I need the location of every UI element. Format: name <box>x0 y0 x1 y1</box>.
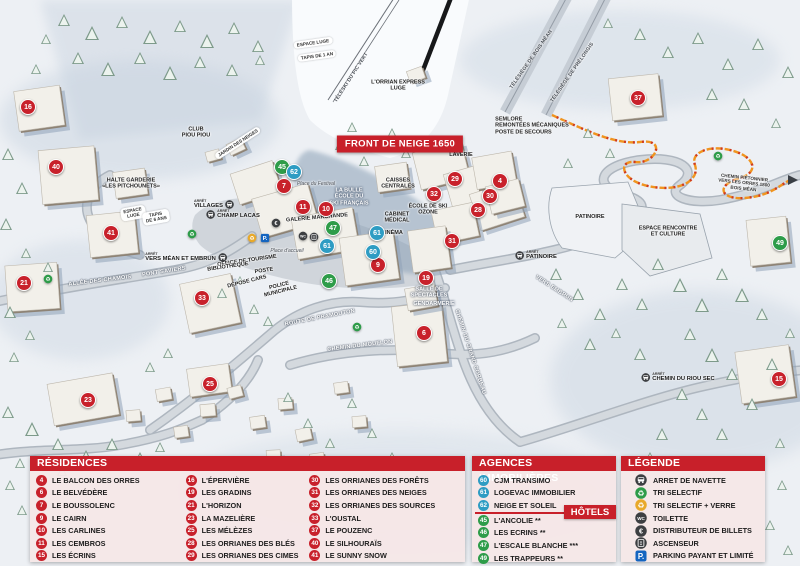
bus-stop-name: CHAMP LACAS <box>217 214 260 220</box>
legend-item: ARRET DE NAVETTE <box>627 474 759 487</box>
map-label: LAVERIE <box>449 152 472 158</box>
svg-text:♻: ♻ <box>638 501 645 510</box>
legend-label: ASCENSEUR <box>653 539 699 548</box>
map-label: CAISSES CENTRALES <box>381 178 415 191</box>
bus-stop-text: ARRÊTCHAMP LACAS <box>217 210 260 219</box>
marker-number: 61 <box>478 487 489 498</box>
residences-panel-title: RÉSIDENCES <box>30 456 465 471</box>
item-label: LES ORRIANES DES CIMES <box>202 551 299 560</box>
recycle-green-icon: ♻ <box>635 487 647 499</box>
map-marker-61: 61 <box>319 238 335 254</box>
map-label: TÉLÉSKI DU PIC VERT <box>334 52 370 104</box>
item-label: LE BELVÉDÈRE <box>52 488 107 497</box>
item-label: L'ESCALE BLANCHE *** <box>494 541 578 550</box>
item-label: LES MÉLÈZES <box>202 526 253 535</box>
marker-number: 29 <box>186 550 197 561</box>
svg-text:♻: ♻ <box>249 235 254 242</box>
map-label: L'ORRIAN EXPRESS LUGE <box>371 80 425 93</box>
map-marker-37: 37 <box>630 90 646 106</box>
recycle-yellow-icon: ♻ <box>635 499 647 511</box>
map-label: VERS EMBRUN <box>534 274 574 303</box>
map-marker-19: 19 <box>418 270 434 286</box>
map-marker-28: 28 <box>470 202 486 218</box>
item-label: LES GRADINS <box>202 488 252 497</box>
map-marker-23: 23 <box>80 392 96 408</box>
list-item: 11LES CEMBROS <box>36 537 186 550</box>
map-marker-47: 47 <box>325 220 341 236</box>
map-label: HALTE GARDERIE «LES PITCHOUNETS» <box>102 178 160 191</box>
residences-column: 4LE BALCON DES ORRES6LE BELVÉDÈRE7LE BOU… <box>36 474 186 562</box>
legend-label: ARRET DE NAVETTE <box>653 476 726 485</box>
legend-item: ASCENSEUR <box>627 537 759 550</box>
legend-item: ♻TRI SELECTIF <box>627 487 759 500</box>
item-label: LES ORRIANES DES FORÊTS <box>325 476 428 485</box>
recycle-yellow-icon: ♻ <box>248 234 257 243</box>
item-label: LE SUNNY SNOW <box>325 551 387 560</box>
list-item: 4LE BALCON DES ORRES <box>36 474 186 487</box>
marker-number: 46 <box>478 527 489 538</box>
list-item: 23LA MAZELIÈRE <box>186 512 310 525</box>
bus-stop-name: CHEMIN DU RIOU SEC <box>652 377 714 383</box>
item-label: LE BALCON DES ORRES <box>52 476 140 485</box>
list-item: 16L'ÉPERVIÈRE <box>186 474 310 487</box>
marker-number: 28 <box>186 538 197 549</box>
item-label: LES CARLINES <box>52 526 106 535</box>
map-label: JARDIN DES NEIGES <box>214 126 262 161</box>
bus-stop: ARRÊTVERS MÉAN ET EMBRUN <box>145 249 227 267</box>
item-label: LE CAIRN <box>52 514 86 523</box>
resort-map: FRONT DE NEIGE 1650 16404121232533711109… <box>0 0 800 566</box>
toilet-icon: WC <box>635 512 647 524</box>
marker-number: 23 <box>186 513 197 524</box>
item-label: LES ÉCRINS <box>52 551 96 560</box>
map-marker-33: 33 <box>194 290 210 306</box>
legend-label: TRI SELECTIF <box>653 488 702 497</box>
bus-stop-name: PATINOIRE <box>526 255 557 261</box>
item-label: L'ANCOLIE ** <box>494 516 541 525</box>
list-item: 15LES ÉCRINS <box>36 550 186 563</box>
map-label: TÉLÉSIÈGE DE PRÉLONGIS <box>550 42 596 104</box>
map-marker-4: 4 <box>492 173 508 189</box>
list-item: 60CJM TRANSIMO <box>478 474 610 487</box>
svg-text:P.: P. <box>638 552 644 561</box>
bus-stop-text: ARRÊTPATINOIRE <box>526 251 557 260</box>
toilet-icon: WC <box>299 232 308 241</box>
map-label: LA BULLE ÉCOLE DU SKI FRANÇAIS <box>329 188 368 207</box>
item-label: NEIGE ET SOLEIL <box>494 501 556 510</box>
legend-label: DISTRIBUTEUR DE BILLETS <box>653 526 752 535</box>
map-label: CHEMIN DU GRAND CORBEAU <box>453 309 487 396</box>
agences-hotels-panel: AGENCES IMMOBILIÈRES 60CJM TRANSIMO61LOG… <box>472 456 616 562</box>
hotels-list: 45L'ANCOLIE **46LES ECRINS **47L'ESCALE … <box>472 514 616 564</box>
legend-item: €DISTRIBUTEUR DE BILLETS <box>627 524 759 537</box>
marker-number: 47 <box>478 540 489 551</box>
map-marker-31: 31 <box>444 233 460 249</box>
map-marker-32: 32 <box>426 186 442 202</box>
list-item: 25LES MÉLÈZES <box>186 524 310 537</box>
recycle-green-icon: ♻ <box>353 323 362 332</box>
hotels-panel-title: HÔTELS <box>564 505 616 519</box>
item-label: LE SILHOURAÏS <box>325 539 381 548</box>
item-label: LES ORRIANES DES BLÉS <box>202 539 295 548</box>
map-marker-15: 15 <box>771 371 787 387</box>
marker-number: 41 <box>309 550 320 561</box>
map-label: TAPIS DE 1 AN <box>297 50 336 63</box>
svg-text:♻: ♻ <box>45 276 50 283</box>
marker-number: 11 <box>36 538 47 549</box>
recycle-green-icon: ♻ <box>188 230 197 239</box>
legend-label: TOILETTE <box>653 514 688 523</box>
list-item: 47L'ESCALE BLANCHE *** <box>478 539 610 552</box>
map-label: CHEMIN PIÉTONNIER VERS LES ORRES 1800 BO… <box>717 172 770 193</box>
map-label: DÉPOSE CARS <box>227 274 267 290</box>
map-label: PONT SAVIERS <box>142 265 187 278</box>
legende-list: ARRET DE NAVETTE♻TRI SELECTIF♻TRI SELECT… <box>621 471 765 562</box>
list-item: 29LES ORRIANES DES CIMES <box>186 550 310 563</box>
map-label: SALLE DE SPECTACLES <box>411 287 448 300</box>
marker-number: 25 <box>186 525 197 536</box>
item-label: LE BOUSSOLENC <box>52 501 115 510</box>
front-de-neige-banner: FRONT DE NEIGE 1650 <box>337 136 463 153</box>
list-item: 31LES ORRIANES DES NEIGES <box>309 487 461 500</box>
marker-number: 7 <box>36 500 47 511</box>
marker-number: 6 <box>36 487 47 498</box>
list-item: 19LES GRADINS <box>186 487 310 500</box>
map-marker-60: 60 <box>365 244 381 260</box>
svg-text:€: € <box>639 526 643 535</box>
marker-number: 15 <box>36 550 47 561</box>
map-marker-10: 10 <box>318 201 334 217</box>
list-item: 41LE SUNNY SNOW <box>309 550 461 563</box>
legende-panel-title: LÉGENDE <box>621 456 765 471</box>
item-label: L'OUSTAL <box>325 514 361 523</box>
legende-panel: LÉGENDE ARRET DE NAVETTE♻TRI SELECTIF♻TR… <box>621 456 765 562</box>
list-item: 46LES ECRINS ** <box>478 527 610 540</box>
marker-number: 10 <box>36 525 47 536</box>
bus-stop-icon <box>206 206 215 224</box>
bus-stop-icon <box>218 249 227 267</box>
bus-stop-name: VERS MÉAN ET EMBRUN <box>145 257 216 263</box>
svg-text:€: € <box>275 221 278 227</box>
marker-number: 19 <box>186 487 197 498</box>
list-item: 10LES CARLINES <box>36 524 186 537</box>
marker-number: 30 <box>309 475 320 486</box>
bus-stop-text: ARRÊTVERS MÉAN ET EMBRUN <box>145 253 216 262</box>
legend-label: TRI SELECTIF + VERRE <box>653 501 736 510</box>
map-marker-25: 25 <box>202 376 218 392</box>
list-item: 40LE SILHOURAÏS <box>309 537 461 550</box>
item-label: LES CEMBROS <box>52 539 106 548</box>
marker-number: 9 <box>36 513 47 524</box>
item-label: LES ORRIANES DES NEIGES <box>325 488 426 497</box>
map-label: ROUTE DE PRAMOUTON <box>284 308 355 328</box>
svg-text:♻: ♻ <box>715 153 720 160</box>
item-label: CJM TRANSIMO <box>494 476 550 485</box>
list-item: 49LES TRAPPEURS ** <box>478 552 610 565</box>
recycle-green-icon: ♻ <box>714 152 723 161</box>
list-item: 6LE BELVÉDÈRE <box>36 487 186 500</box>
bus-stop-icon <box>641 369 650 387</box>
recycle-green-icon: ♻ <box>44 275 53 284</box>
map-label: TÉLÉSIÈGE DE BOIS MÉAN <box>509 29 554 90</box>
svg-text:♻: ♻ <box>638 489 645 498</box>
svg-text:WC: WC <box>300 234 306 238</box>
map-label: CLUB PIOU PIOU <box>182 127 210 140</box>
marker-number: 49 <box>478 553 489 564</box>
map-label: ÉCOLE DE SKI OZONE <box>409 204 448 217</box>
svg-text:♻: ♻ <box>354 324 359 331</box>
list-item: 9LE CAIRN <box>36 512 186 525</box>
elevator-icon <box>310 233 319 242</box>
parking-icon: P. <box>261 234 270 243</box>
bus-stop: ARRÊTPATINOIRE <box>515 247 557 265</box>
map-label: CHEMIN DU MOUFLON <box>327 339 393 353</box>
bus-stop: ARRÊTCHEMIN DU RIOU SEC <box>641 369 714 387</box>
parking-icon: P. <box>635 550 647 562</box>
map-label: SEMLORE REMONTÉES MÉCANIQUES POSTE DE SE… <box>495 117 569 136</box>
marker-number: 31 <box>309 487 320 498</box>
list-item: 30LES ORRIANES DES FORÊTS <box>309 474 461 487</box>
map-marker-16: 16 <box>20 99 36 115</box>
euro-icon: € <box>635 525 647 537</box>
residences-panel: RÉSIDENCES 4LE BALCON DES ORRES6LE BELVÉ… <box>30 456 465 562</box>
map-marker-46: 46 <box>321 273 337 289</box>
map-marker-61: 61 <box>369 225 385 241</box>
bus-icon <box>635 474 647 486</box>
list-item: 32LES ORRIANES DES SOURCES <box>309 499 461 512</box>
item-label: L'HORIZON <box>202 501 242 510</box>
residences-column: 30LES ORRIANES DES FORÊTS31LES ORRIANES … <box>309 474 461 562</box>
svg-text:WC: WC <box>637 516 645 521</box>
map-label: GENDARMERIE <box>413 301 454 307</box>
map-marker-6: 6 <box>416 325 432 341</box>
bus-stop-icon <box>515 247 524 265</box>
item-label: LES TRAPPEURS ** <box>494 554 563 563</box>
list-item: 7LE BOUSSOLENC <box>36 499 186 512</box>
euro-icon: € <box>272 219 281 228</box>
item-label: LES ECRINS ** <box>494 528 546 537</box>
marker-number: 4 <box>36 475 47 486</box>
item-label: L'ÉPERVIÈRE <box>202 476 250 485</box>
list-item: 21L'HORIZON <box>186 499 310 512</box>
legend-item: WCTOILETTE <box>627 512 759 525</box>
map-label: POLICE MUNICIPALE <box>262 279 298 299</box>
map-label: PATINOIRE <box>575 214 604 220</box>
residences-list: 4LE BALCON DES ORRES6LE BELVÉDÈRE7LE BOU… <box>30 471 465 562</box>
list-item: 37LE POUZENC <box>309 524 461 537</box>
item-label: LA MAZELIÈRE <box>202 514 256 523</box>
item-label: LES ORRIANES DES SOURCES <box>325 501 435 510</box>
map-label: ESPACE LUGE <box>293 37 332 50</box>
legend-item: ♻TRI SELECTIF + VERRE <box>627 499 759 512</box>
list-item: 61LOGEVAC IMMOBILIER <box>478 487 610 500</box>
map-marker-40: 40 <box>48 159 64 175</box>
map-marker-49: 49 <box>772 235 788 251</box>
residences-column: 16L'ÉPERVIÈRE19LES GRADINS21L'HORIZON23L… <box>186 474 310 562</box>
marker-number: 33 <box>309 513 320 524</box>
list-item: 33L'OUSTAL <box>309 512 461 525</box>
list-item: 28LES ORRIANES DES BLÉS <box>186 537 310 550</box>
item-label: LE POUZENC <box>325 526 372 535</box>
map-marker-41: 41 <box>103 225 119 241</box>
marker-number: 16 <box>186 475 197 486</box>
marker-number: 40 <box>309 538 320 549</box>
map-label: ESPACE RENCONTRE ET CULTURE <box>639 226 698 239</box>
bus-stop-text: ARRÊTCHEMIN DU RIOU SEC <box>652 373 714 382</box>
map-marker-62: 62 <box>286 164 302 180</box>
marker-number: 45 <box>478 515 489 526</box>
marker-number: 37 <box>309 525 320 536</box>
map-marker-11: 11 <box>295 199 311 215</box>
map-label: CABINET MÉDICAL <box>384 212 409 225</box>
elevator-icon <box>635 537 647 549</box>
bus-stop: ARRÊTCHAMP LACAS <box>206 206 260 224</box>
item-label: LOGEVAC IMMOBILIER <box>494 488 575 497</box>
map-label: ALLÉE DES CHAMOIS <box>68 274 132 288</box>
agences-panel-title: AGENCES IMMOBILIÈRES <box>472 456 616 471</box>
marker-number: 62 <box>478 500 489 511</box>
svg-text:P.: P. <box>263 236 268 242</box>
marker-number: 32 <box>309 500 320 511</box>
legend-label: PARKING PAYANT ET LIMITÉ <box>653 551 754 560</box>
marker-number: 60 <box>478 475 489 486</box>
map-marker-21: 21 <box>16 275 32 291</box>
legend-item: P.PARKING PAYANT ET LIMITÉ <box>627 550 759 563</box>
marker-number: 21 <box>186 500 197 511</box>
map-marker-30: 30 <box>482 188 498 204</box>
map-marker-29: 29 <box>447 171 463 187</box>
map-label: TAPIS DE 6 ANS <box>142 208 171 225</box>
svg-text:♻: ♻ <box>189 231 194 238</box>
map-marker-7: 7 <box>276 178 292 194</box>
